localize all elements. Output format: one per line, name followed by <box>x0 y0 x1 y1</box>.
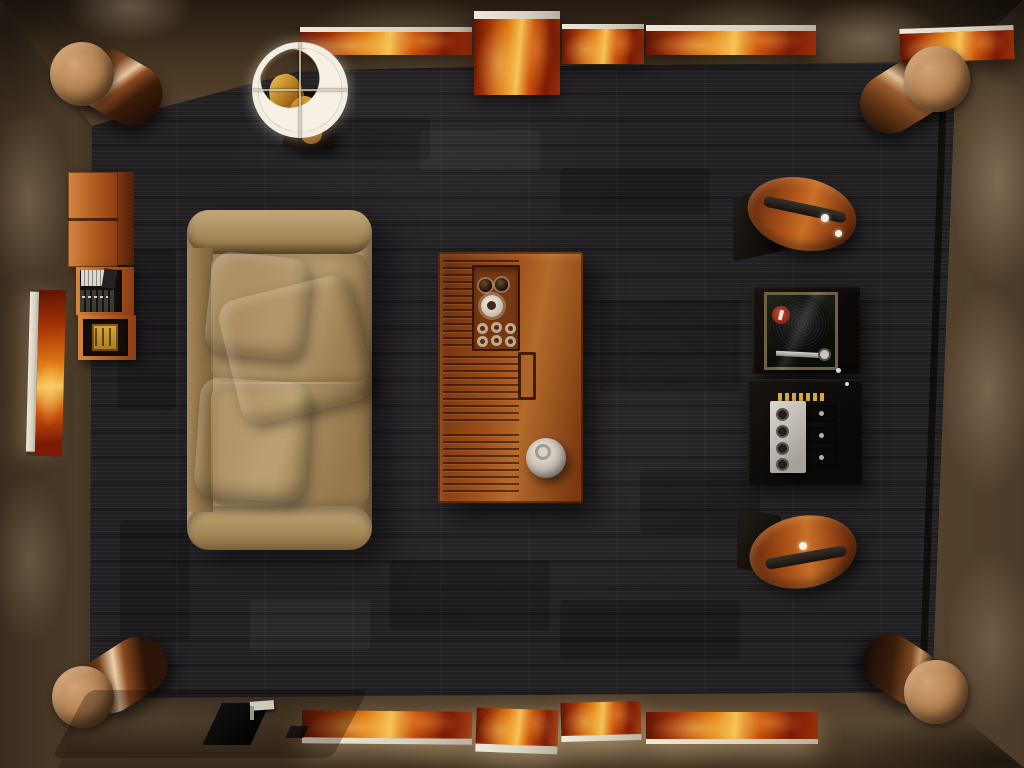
art-panel <box>646 25 816 55</box>
canvas-face <box>561 701 642 736</box>
amp-faceplate <box>770 401 806 473</box>
corner-speaker-bottom-right <box>860 626 972 730</box>
empty-glass <box>477 336 488 347</box>
empty-glass <box>491 335 502 346</box>
corner-speaker-top-left <box>48 36 158 132</box>
sofa-arm-top <box>187 210 372 254</box>
empty-glass <box>505 336 516 347</box>
highlight-dot <box>799 542 807 550</box>
empty-glass <box>505 323 516 334</box>
turntable-unit <box>752 286 860 374</box>
carpet-patch-light <box>420 130 540 170</box>
glass-glare <box>764 292 838 370</box>
drawer-handle <box>518 352 536 400</box>
cd-spines-dark <box>80 290 116 312</box>
canvas-face <box>562 29 644 64</box>
table-slats <box>443 434 519 496</box>
carpet-patch <box>600 300 740 392</box>
canvas-lit-edge <box>474 11 560 19</box>
heatsink-block <box>807 427 837 444</box>
wedge-speaker-lower <box>733 506 859 598</box>
sofa-arm-bottom <box>187 506 372 550</box>
gold-connectors <box>778 393 826 401</box>
reflection-glint <box>845 382 849 386</box>
amp-knob <box>776 408 789 421</box>
corner-speaker-top-right <box>856 40 974 138</box>
ceramic-bowl <box>526 438 566 478</box>
canvas-face <box>474 19 560 95</box>
heatsink-block <box>807 405 837 422</box>
canvas-face <box>476 708 559 747</box>
canvas-face <box>646 712 818 739</box>
canvas-face <box>35 290 66 457</box>
amp-knob <box>776 458 789 471</box>
highlight-dot <box>821 214 829 222</box>
white-cup <box>481 295 503 317</box>
canvas-face <box>646 31 816 55</box>
carpet-patch-light <box>250 600 370 650</box>
carpet-patch <box>560 168 710 214</box>
cabinet-side <box>118 172 134 265</box>
cup-interior <box>487 301 496 310</box>
cabinet-divider <box>68 218 118 221</box>
media-shelf <box>66 170 138 362</box>
amplifier-unit <box>747 379 862 485</box>
dark-glass <box>495 278 508 291</box>
dark-glass <box>479 279 492 292</box>
reflection-glint <box>836 368 841 373</box>
heatsink-screw <box>819 455 824 460</box>
art-panel <box>474 11 560 95</box>
bowl-interior <box>535 444 551 460</box>
table-slats <box>443 356 519 426</box>
lamp-wire-vertical <box>299 42 301 138</box>
art-panel <box>646 712 818 744</box>
empty-glass <box>491 322 502 333</box>
amber-box-slots <box>95 328 115 346</box>
canvas-lit-edge <box>646 739 818 744</box>
carpet-patch <box>560 600 740 660</box>
art-panel <box>475 708 558 755</box>
room-render <box>0 0 1024 768</box>
serving-tray <box>472 265 520 351</box>
heatsink-screw <box>819 411 824 416</box>
speaker-cork-cap <box>904 46 970 112</box>
speaker-cork-cap <box>904 660 968 724</box>
carpet-patch <box>390 560 550 630</box>
throw-pillow <box>193 376 313 504</box>
floor-mat-shadow <box>52 690 368 758</box>
heatsink-block <box>807 449 837 466</box>
highlight-dot <box>835 230 842 237</box>
hatch-connector-leg <box>250 706 254 720</box>
empty-glass <box>477 323 488 334</box>
speaker-cork-cap <box>50 42 114 106</box>
wedge-speaker-upper <box>733 172 863 264</box>
art-panel-left <box>26 290 66 457</box>
amp-knob <box>776 442 789 455</box>
carpet-patch <box>120 520 190 640</box>
amp-knob <box>776 425 789 438</box>
art-panel <box>561 701 642 742</box>
cd-label-marks <box>82 296 108 298</box>
coffee-table <box>438 252 583 503</box>
heatsink-screw <box>819 433 824 438</box>
art-panel <box>562 24 644 64</box>
